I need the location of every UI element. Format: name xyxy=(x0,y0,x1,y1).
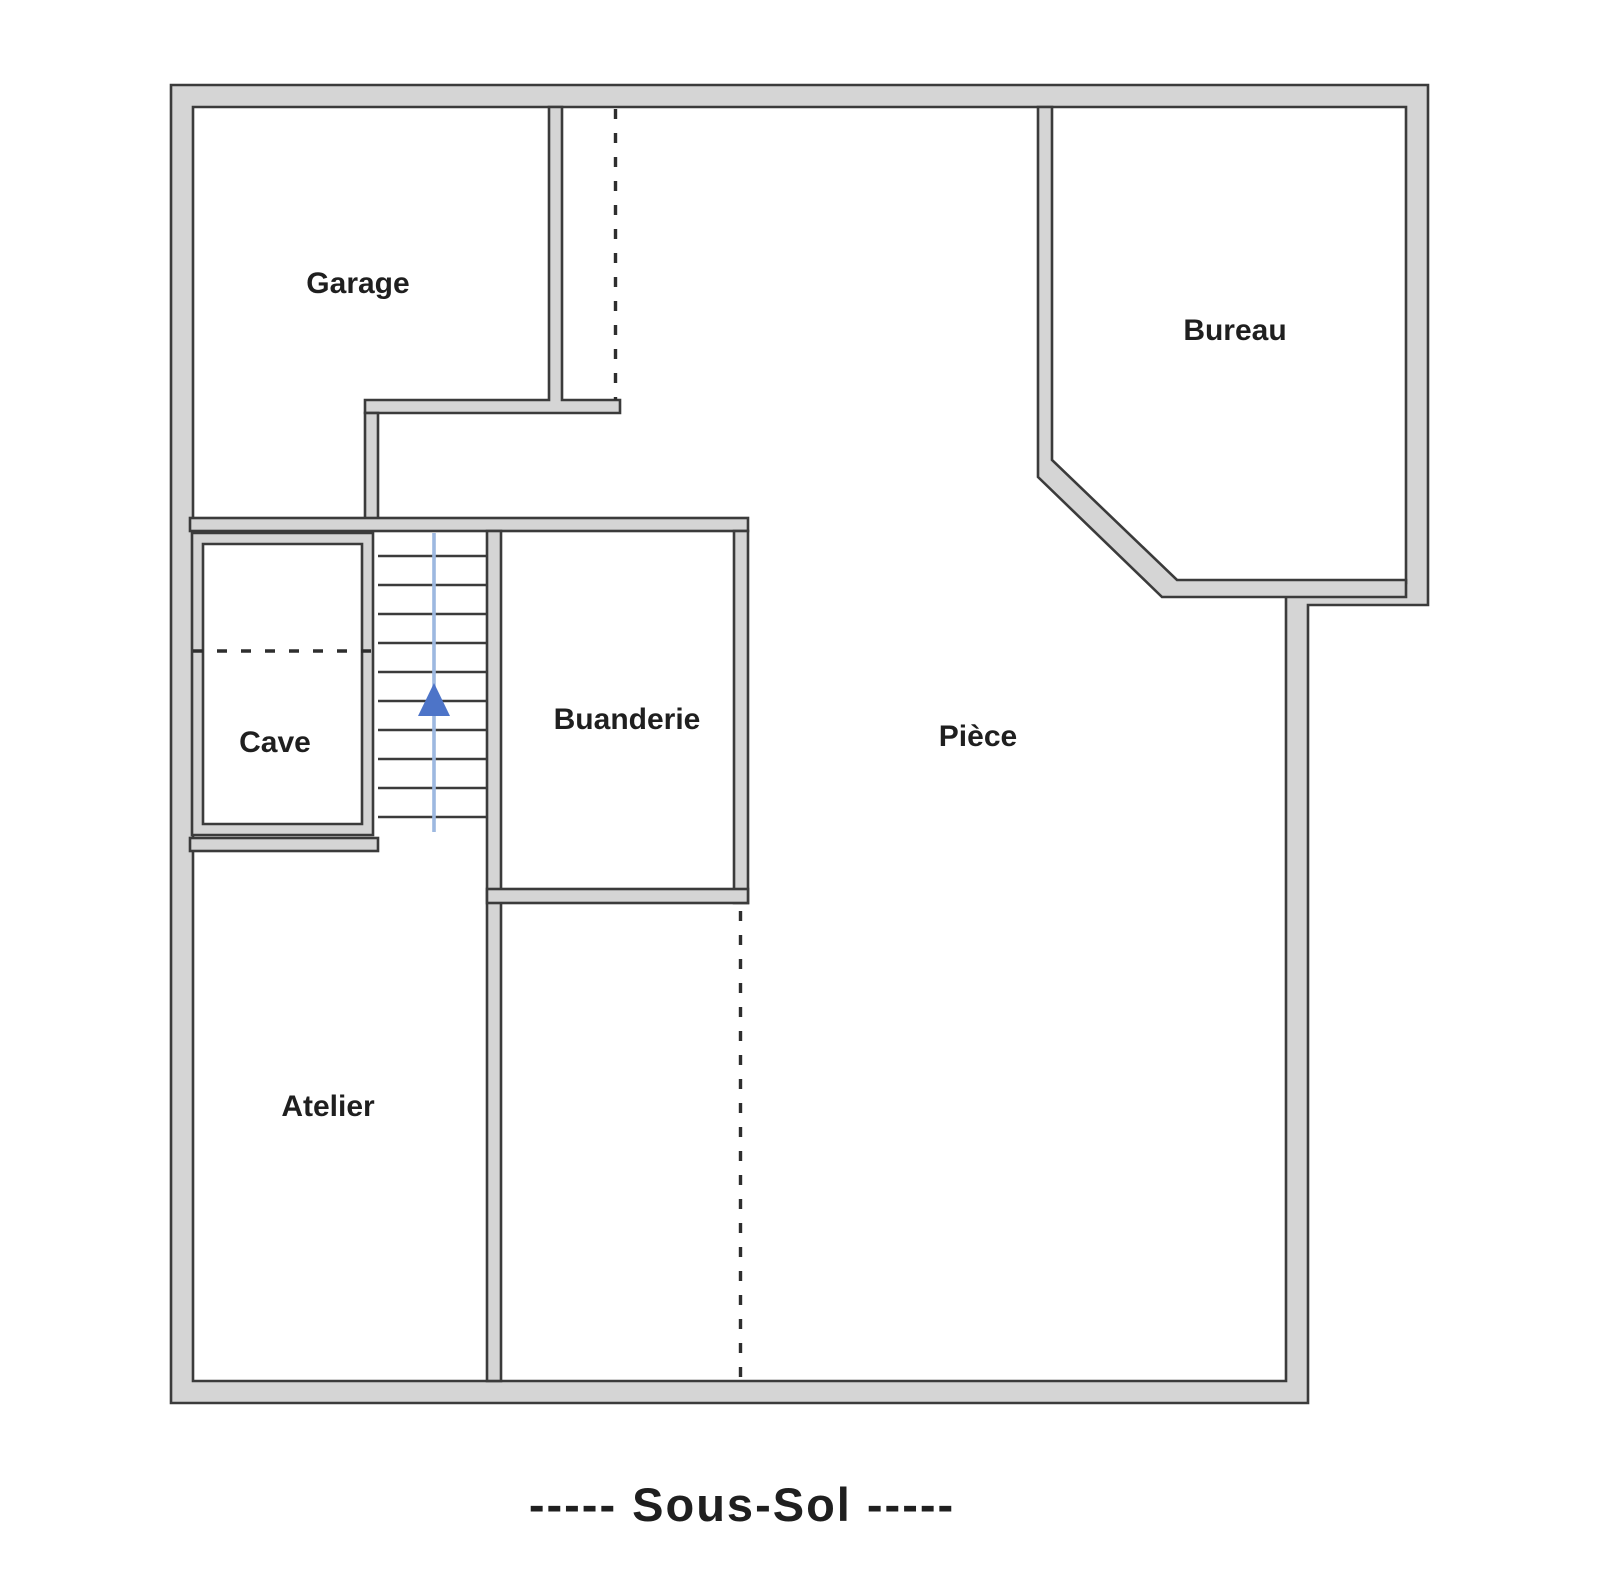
cave-wall xyxy=(192,533,373,835)
room-label-atelier: Atelier xyxy=(281,1090,375,1123)
staircase xyxy=(378,533,487,832)
stair-up-arrow-icon xyxy=(418,683,450,716)
stair-left-wall xyxy=(365,413,378,521)
atelier-top-wall xyxy=(190,838,378,851)
room-label-cave: Cave xyxy=(239,726,311,759)
garage-wall xyxy=(365,107,620,413)
buanderie-bottom-wall xyxy=(487,889,748,903)
room-label-piece: Pièce xyxy=(939,720,1017,753)
bureau-wall xyxy=(1038,107,1406,597)
hall-wall xyxy=(190,518,748,531)
room-label-bureau: Bureau xyxy=(1183,314,1286,347)
floorplan-svg: Garage Bureau Cave Buanderie Pièce Ateli… xyxy=(0,0,1600,1569)
atelier-right-wall xyxy=(487,531,501,1381)
floor-title: ----- Sous-Sol ----- xyxy=(529,1478,955,1531)
room-label-buanderie: Buanderie xyxy=(554,703,701,736)
buanderie-right-wall xyxy=(734,531,748,903)
room-label-garage: Garage xyxy=(306,267,409,300)
